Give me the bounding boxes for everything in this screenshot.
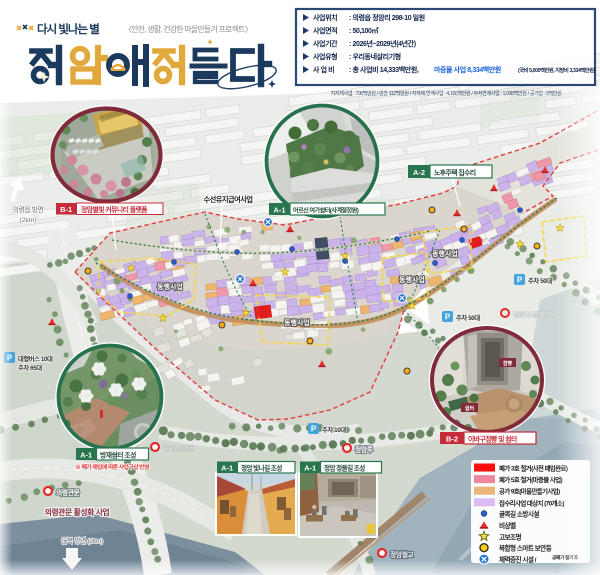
svg-text:: 총 사업비 14,333백만원,: : 총 사업비 14,333백만원, [349, 65, 419, 74]
svg-text:사업유형: 사업유형 [313, 52, 337, 61]
svg-text:: 50,100㎡: : 50,100㎡ [349, 26, 378, 35]
svg-text:: 의령읍 정암리 298-10 일원: : 의령읍 정암리 298-10 일원 [349, 13, 425, 22]
svg-text:: 2026년~2029년(4년간): : 2026년~2029년(4년간) [349, 39, 416, 48]
svg-text:사업기간: 사업기간 [313, 39, 338, 48]
svg-text:사 업 비: 사 업 비 [313, 65, 334, 74]
svg-text:〈안전, 생활, 건강한 마을만들기 프로젝트〉: 〈안전, 생활, 건강한 마을만들기 프로젝트〉 [124, 24, 252, 34]
svg-text:: 우리동네살리기형: : 우리동네살리기형 [349, 52, 401, 61]
svg-text:(국비 5,000백만원, 지방비 3,334백만원): (국비 5,000백만원, 지방비 3,334백만원) [518, 66, 596, 74]
svg-text:사업면적: 사업면적 [313, 26, 337, 35]
svg-text:다시 빛나는 별: 다시 빛나는 별 [37, 22, 99, 36]
svg-text:마중물 사업 8,334백만원: 마중물 사업 8,334백만원 [434, 65, 501, 74]
svg-text:사업위치: 사업위치 [313, 13, 337, 22]
